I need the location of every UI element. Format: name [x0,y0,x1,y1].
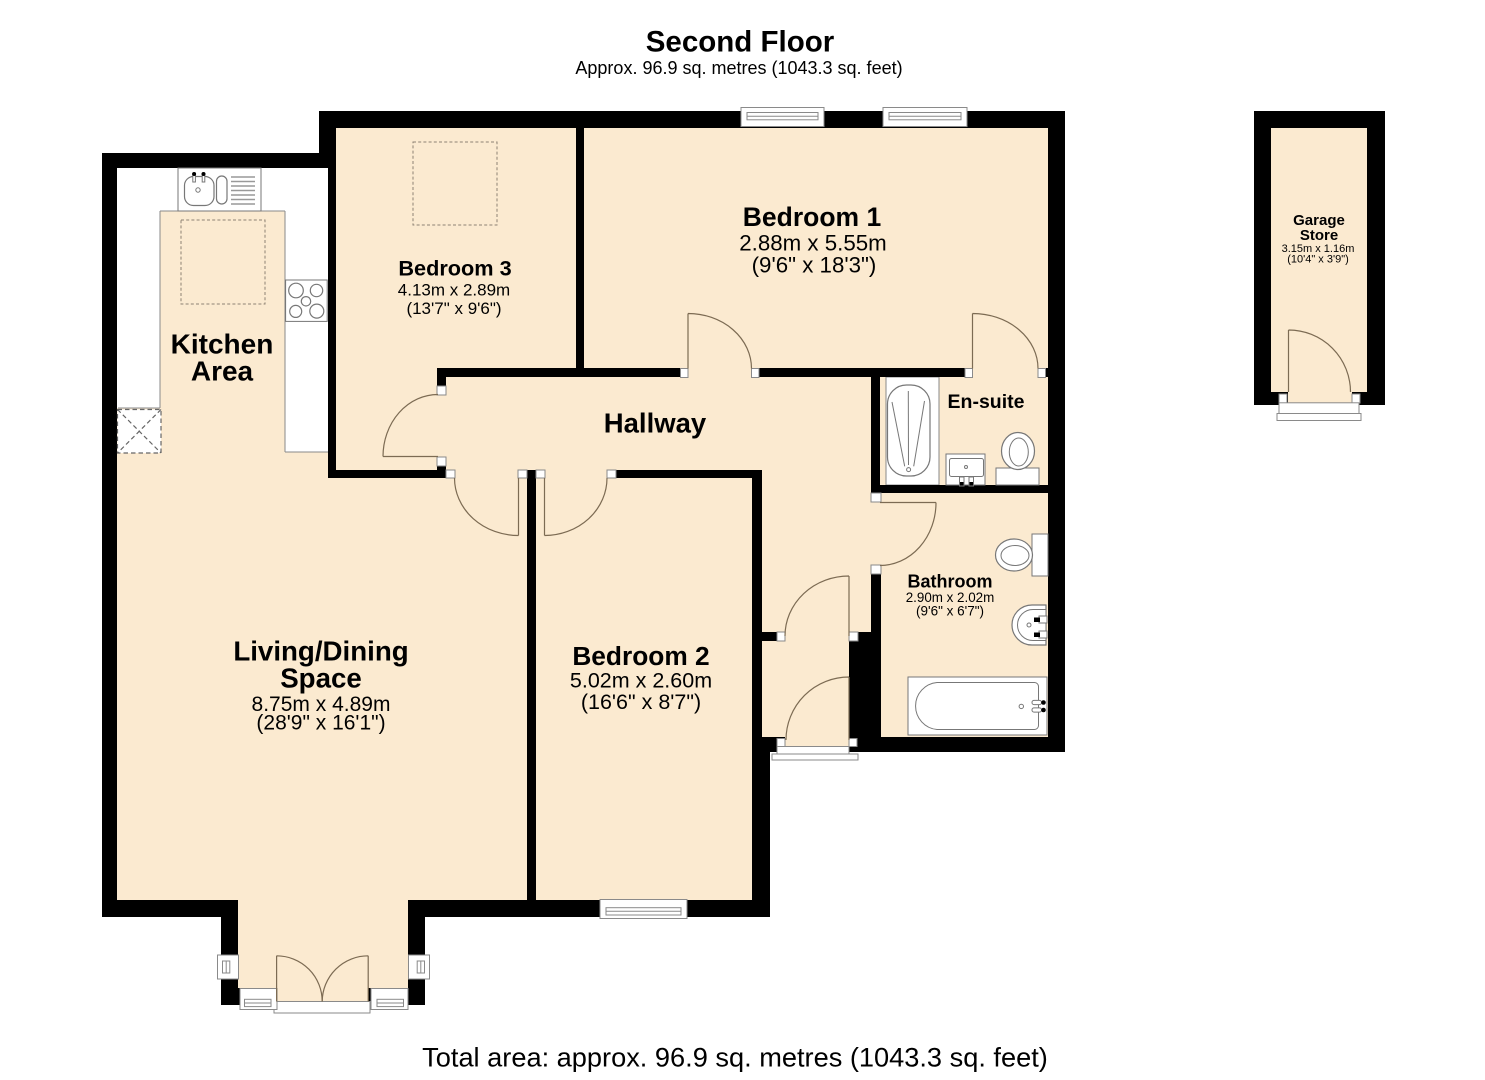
svg-text:Bathroom: Bathroom [908,572,993,592]
svg-text:Hallway: Hallway [604,408,707,439]
svg-text:4.13m x 2.89m: 4.13m x 2.89m [398,281,510,300]
svg-text:(28'9" x 16'1"): (28'9" x 16'1") [256,712,385,735]
svg-text:Space: Space [280,663,362,694]
svg-text:Bedroom 3: Bedroom 3 [398,256,511,281]
svg-text:(16'6" x 8'7"): (16'6" x 8'7") [581,690,701,714]
svg-text:(13'7" x 9'6"): (13'7" x 9'6") [406,299,501,318]
svg-text:Second Floor: Second Floor [646,26,835,59]
svg-text:Bedroom 1: Bedroom 1 [743,202,881,232]
svg-text:Approx. 96.9 sq. metres (1043.: Approx. 96.9 sq. metres (1043.3 sq. feet… [575,58,902,78]
svg-text:5.02m x 2.60m: 5.02m x 2.60m [570,669,712,693]
svg-text:Store: Store [1300,227,1338,244]
svg-text:(10'4" x 3'9"): (10'4" x 3'9") [1287,254,1349,266]
svg-text:Total area: approx. 96.9 sq. m: Total area: approx. 96.9 sq. metres (104… [422,1042,1048,1073]
svg-text:(9'6" x 6'7"): (9'6" x 6'7") [916,604,984,619]
svg-text:En-suite: En-suite [948,391,1025,413]
svg-text:Area: Area [191,356,254,387]
svg-text:(9'6" x 18'3"): (9'6" x 18'3") [752,253,877,278]
svg-text:Bedroom 2: Bedroom 2 [572,641,709,671]
